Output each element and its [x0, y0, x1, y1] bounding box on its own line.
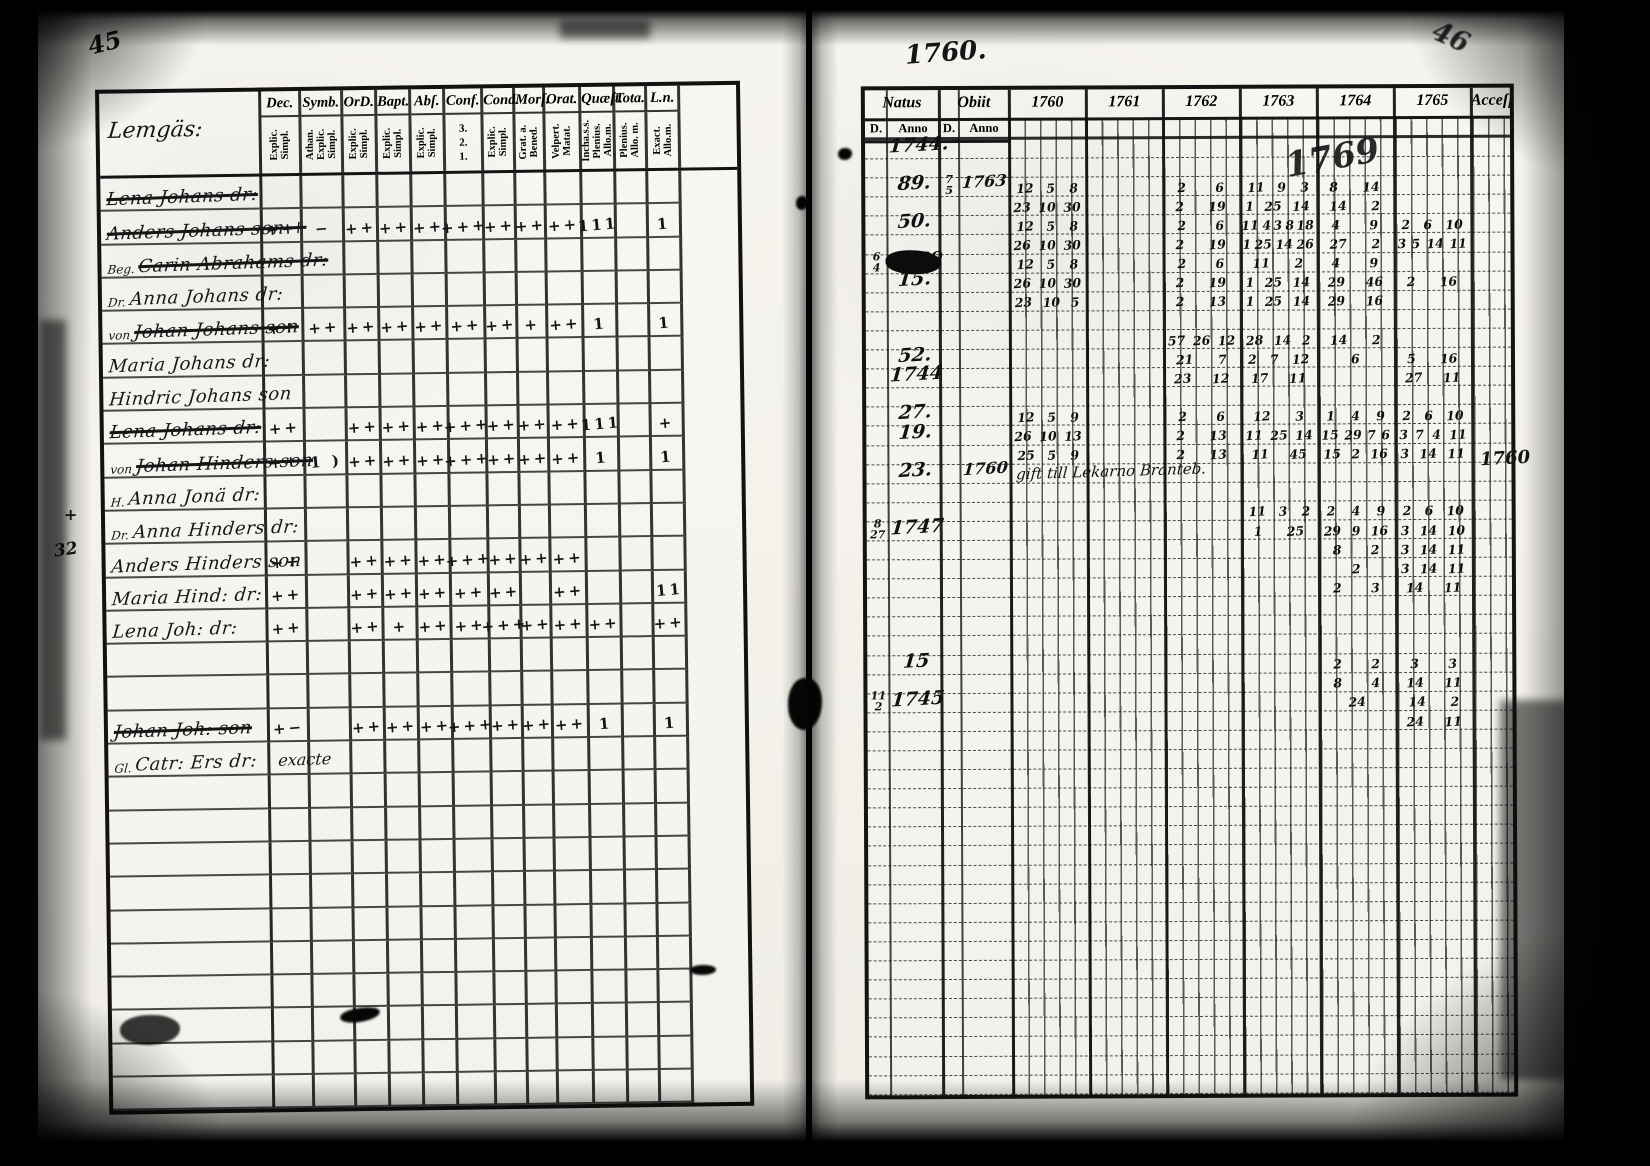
attendance-mark: ++	[547, 217, 579, 235]
year-cell: 142	[1318, 327, 1393, 346]
communion-date: 11	[1447, 447, 1465, 460]
mark-cell	[309, 641, 351, 675]
communion-date: 3	[1397, 238, 1406, 251]
attendance-mark: ++	[487, 451, 519, 469]
mark-cell	[309, 675, 351, 709]
year-cell: 261030	[1010, 271, 1085, 290]
person-name: Anna Jonä dr:	[128, 486, 261, 509]
mark-cell	[353, 774, 387, 808]
mark-cell	[488, 473, 520, 507]
communion-date: 2	[1371, 238, 1380, 251]
communion-date: 6	[1381, 429, 1390, 442]
mark-cell: ++	[487, 406, 519, 440]
communion-date: 25	[1270, 429, 1288, 442]
edge-smear	[560, 20, 650, 38]
mark-cell	[273, 975, 313, 1009]
communion-date: 2	[1294, 257, 1303, 270]
mark-cell	[388, 840, 422, 874]
mark-cell	[312, 908, 354, 942]
communion-date: 14	[1420, 524, 1438, 537]
mark-cell	[660, 1003, 693, 1037]
mark-cell	[519, 372, 549, 406]
column-subheader: 3. 2. 1.	[445, 114, 484, 171]
mark-cell	[487, 373, 519, 407]
mark-cell	[595, 1070, 629, 1104]
name-cell: vonJohan Hinders son	[104, 443, 266, 479]
communion-date: 1	[1254, 525, 1263, 538]
mark-cell	[527, 972, 557, 1006]
mark-cell	[381, 341, 415, 375]
communion-date: 9	[1277, 181, 1286, 194]
communion-date: 3	[1410, 658, 1419, 671]
attendance-mark: +++	[443, 417, 491, 436]
year-cell: 23	[1319, 575, 1394, 594]
name-cell: vonJohan Johans son	[102, 310, 264, 346]
mark-cell	[661, 1070, 694, 1104]
mark-cell	[307, 542, 349, 576]
year-cell: 152976	[1318, 423, 1393, 442]
column-subheader: Exact. Allo.m.	[647, 112, 681, 168]
communion-date: 14	[1329, 200, 1347, 213]
communion-date: 2	[1176, 296, 1185, 309]
mark-cell	[357, 1074, 391, 1108]
communion-date: 23	[1174, 372, 1192, 385]
mark-cell	[345, 241, 379, 275]
mark-cell	[624, 737, 656, 771]
natus-day-part: 2	[867, 701, 889, 712]
mark-cell	[556, 838, 592, 872]
attendance-mark: ++	[588, 616, 620, 634]
year-cell: 1132	[1242, 499, 1317, 518]
column-header: Quæſt.	[581, 87, 615, 113]
mark-cell: +++	[450, 440, 488, 474]
year-cell: 12514	[1240, 194, 1315, 213]
rotated-subheader-text: Explic. Simpl.	[348, 128, 370, 160]
year-cell: 49	[1317, 213, 1392, 232]
attendance-mark: ++	[350, 619, 382, 637]
communion-date: 9	[1352, 525, 1361, 538]
name-cell	[109, 809, 271, 845]
obiit-year: 1763	[958, 171, 1010, 193]
mark-cell	[355, 974, 389, 1008]
mark-cell	[592, 904, 626, 938]
attendance-mark: ++	[269, 454, 301, 472]
communion-date: 2	[1351, 448, 1360, 461]
name-cell	[112, 1042, 274, 1078]
communion-date: 2	[1301, 506, 1310, 519]
mark-cell	[495, 939, 527, 973]
mark-cell	[618, 304, 650, 338]
name-cell	[111, 976, 273, 1012]
mark-cell	[624, 704, 656, 738]
mark-cell	[659, 936, 692, 970]
attendance-mark: ++	[551, 450, 583, 468]
mark-cell	[308, 575, 350, 609]
name-prefix: H.	[110, 495, 126, 510]
attendance-mark: ++	[347, 419, 379, 437]
mark-cell	[555, 805, 591, 839]
year-cell: 216	[1395, 269, 1470, 288]
communion-date: 14	[1293, 295, 1311, 308]
natus-year: 19.	[889, 419, 941, 444]
attendance-mark: ++	[270, 587, 302, 605]
attendance-mark: ++	[550, 416, 582, 434]
mark-cell	[420, 740, 454, 774]
communion-date: 14	[1420, 543, 1438, 556]
communion-date: 1	[1245, 200, 1254, 213]
year-cell: 2712	[1241, 347, 1316, 366]
mark-cell	[273, 942, 313, 976]
year-cell: 1258	[1009, 176, 1084, 195]
communion-date: 6	[1424, 410, 1433, 423]
year-cell: 142	[1396, 690, 1471, 709]
name-cell: Johan Joh: son	[108, 709, 270, 745]
communion-date: 12	[1016, 220, 1034, 233]
communion-date: 7	[1415, 429, 1424, 442]
mark-cell	[587, 504, 621, 538]
name-cell	[109, 776, 271, 812]
natus-year: 50.	[888, 209, 940, 234]
communion-date: 19	[1209, 277, 1227, 290]
year-cell: 22	[1319, 652, 1394, 671]
mark-cell	[496, 1005, 528, 1039]
mark-cell: 1	[652, 437, 685, 471]
year-cell: 217	[1164, 347, 1239, 366]
attendance-mark: ++	[450, 318, 482, 336]
communion-date: 14	[1274, 334, 1292, 347]
communion-date: 2	[1326, 506, 1335, 519]
communion-date: 5	[1047, 220, 1056, 233]
column-subheader: Velpert. Matat.	[545, 113, 582, 169]
mark-cell: ++	[588, 604, 622, 638]
communion-date: 14	[1275, 238, 1293, 251]
attendance-mark: ++	[418, 618, 450, 636]
attendance-mark: +−	[272, 720, 304, 738]
mark-cell: +	[651, 404, 684, 438]
mark-cell: 1 )	[306, 442, 348, 476]
communion-date: 9	[1376, 505, 1385, 518]
column-header: Bapt.	[377, 89, 411, 115]
rotated-subheader-text: Explic. Simpl.	[269, 129, 291, 161]
mark-cell	[271, 775, 311, 809]
communion-date: 4	[1432, 429, 1441, 442]
natus-year: 15	[890, 648, 942, 673]
year-cell: 219	[1163, 194, 1238, 213]
mark-cell	[518, 272, 548, 306]
year-cell: 15216	[1318, 442, 1393, 461]
attendance-mark: ++	[554, 716, 586, 734]
communion-date: 29	[1327, 295, 1345, 308]
ink-blob	[796, 196, 808, 210]
mark-cell	[619, 371, 651, 405]
communion-date: 11	[1449, 237, 1467, 250]
communion-date: 5	[1047, 411, 1056, 424]
communion-date: 6	[1215, 258, 1224, 271]
communion-date: 2	[1302, 334, 1311, 347]
communion-date: 25	[1254, 238, 1272, 251]
mark-cell: ++	[490, 572, 522, 606]
column-header: Tota.	[615, 86, 647, 112]
communion-date: 12	[1016, 258, 1034, 271]
attendance-mark: +++	[441, 217, 489, 236]
year-cell: 26	[1163, 175, 1238, 194]
communion-date: 11	[1442, 371, 1460, 384]
mark-cell	[347, 341, 381, 375]
year-cell: 84	[1319, 671, 1394, 690]
year-cell: 26	[1164, 404, 1239, 423]
name-cell: Maria Hind: dr:	[106, 576, 268, 612]
attendance-mark: ++	[383, 552, 415, 570]
mark-cell	[421, 806, 455, 840]
margin-mark-plus: +	[64, 505, 77, 524]
year-cell: 33	[1396, 651, 1471, 670]
year-cell: 6	[1318, 346, 1393, 365]
column-header: Morſ.	[515, 88, 545, 114]
communion-date: 11	[1448, 543, 1466, 556]
communion-date: 25	[1287, 525, 1305, 538]
communion-date: 2	[1247, 353, 1256, 366]
mark-cell	[415, 374, 449, 408]
mark-cell	[591, 771, 625, 805]
mark-cell	[525, 805, 555, 839]
name-cell: Hindric Johans son	[103, 376, 265, 412]
mark-cell: +	[518, 306, 548, 340]
mark-cell	[351, 641, 385, 675]
mark-cell	[351, 674, 385, 708]
mark-cell	[556, 871, 592, 905]
mark-cell	[266, 476, 306, 510]
mark-cell	[378, 174, 412, 208]
name-prefix: Dr.	[111, 528, 130, 543]
mark-cell	[618, 271, 650, 305]
mark-cell	[621, 504, 653, 538]
year-cell: 213	[1164, 290, 1239, 309]
mark-cell	[312, 874, 354, 908]
mark-cell	[523, 672, 553, 706]
natus-day-part: 27	[867, 529, 889, 540]
mark-cell: ++	[345, 208, 379, 242]
attendance-mark: ++	[268, 420, 300, 438]
mark-cell	[655, 637, 688, 671]
mark-cell	[623, 637, 655, 671]
attendance-mark: 111	[578, 216, 619, 234]
mark-cell	[272, 875, 312, 909]
attendance-mark: ++	[414, 318, 446, 336]
mark-cell	[271, 808, 311, 842]
communion-date: 2	[1175, 201, 1184, 214]
mark-cell: ++	[489, 539, 521, 573]
attendance-mark: ++	[553, 616, 585, 634]
mark-cell	[620, 471, 652, 505]
mark-cell	[493, 772, 525, 806]
attendance-mark: ++	[490, 717, 522, 735]
year-cell: 31411	[1396, 556, 1471, 575]
communion-date: 5	[1047, 258, 1056, 271]
year-cell: 112514	[1241, 423, 1316, 442]
year-cell: 49	[1318, 251, 1393, 270]
mark-cell	[484, 173, 516, 207]
mark-cell	[622, 604, 654, 638]
attendance-mark: ++	[552, 550, 584, 568]
communion-date: 18	[1296, 219, 1314, 232]
mark-cell: ++	[348, 441, 382, 475]
mark-cell	[593, 971, 627, 1005]
year-cell: 24	[1319, 690, 1394, 709]
person-name: Anna Johans dr:	[129, 286, 284, 309]
mark-cell	[623, 670, 655, 704]
name-prefix: Gl.	[114, 762, 133, 777]
year-cell: 2916	[1318, 289, 1393, 308]
mark-cell	[417, 507, 451, 541]
communion-date: 4	[1351, 505, 1360, 518]
mark-cell	[455, 773, 493, 807]
year-cell: 82	[1319, 537, 1394, 556]
year-cell: 2559	[1010, 443, 1085, 462]
rotated-subheader-text: Plenius. Allo. m.	[619, 123, 642, 159]
natus-day-part: 4	[866, 262, 888, 273]
column-subheader: Grat. a. Bened.	[515, 114, 546, 170]
person-name: Maria Johans dr:	[108, 352, 271, 376]
mark-cell	[629, 1070, 661, 1104]
communion-date: 1	[1326, 410, 1335, 423]
mark-cell	[585, 371, 619, 405]
communion-date: 14	[1295, 429, 1313, 442]
column-header: Cond.	[483, 88, 515, 114]
left-table: Dec.Symb.OrD.Bapt.Abſ.Conf.Cond.Morſ.Ora…	[95, 81, 754, 1115]
attendance-mark: ++	[417, 585, 449, 603]
year-cell: 261013	[1010, 424, 1085, 443]
year-cell: 1258	[1009, 214, 1084, 233]
natus-year: 1744.	[888, 133, 940, 158]
attendance-mark: +++	[444, 450, 492, 469]
obiit-year: 1760	[960, 457, 1012, 479]
edge-smear	[1500, 700, 1570, 1080]
rotated-subheader-text: 3. 2. 1.	[459, 121, 468, 164]
attendance-mark: +++	[448, 717, 496, 736]
communion-date: 11	[1449, 428, 1467, 441]
mark-cell	[627, 937, 659, 971]
mark-cell	[557, 971, 593, 1005]
attendance-mark: ++	[519, 550, 551, 568]
communion-date: 26	[1192, 334, 1210, 347]
mark-cell: ++	[552, 572, 588, 606]
mark-cell	[492, 739, 524, 773]
communion-date: 15	[1323, 448, 1341, 461]
name-cell	[107, 676, 269, 712]
communion-date: 11	[1443, 581, 1461, 594]
mark-cell	[491, 672, 523, 706]
communion-date: 12	[1253, 410, 1271, 423]
rotated-subheader-text: Explic. Simpl.	[382, 128, 404, 160]
mark-cell	[559, 1071, 595, 1105]
name-cell: Anders Johans son +	[101, 210, 263, 246]
communion-date: 11	[1251, 448, 1269, 461]
column-header: OrD.	[343, 90, 377, 116]
mark-cell	[305, 342, 347, 376]
mark-cell: ++	[350, 608, 384, 642]
mark-cell: ++	[548, 305, 584, 339]
communion-date: 10	[1038, 277, 1056, 290]
mark-cell: ++	[386, 707, 420, 741]
mark-cell: ++	[346, 308, 380, 342]
mark-cell	[382, 474, 416, 508]
communion-date: 11	[1241, 219, 1259, 232]
year-cell: 1251426	[1240, 232, 1315, 251]
mark-cell	[653, 537, 686, 571]
mark-cell	[589, 671, 623, 705]
column-subheader: Plenius. Allo. m.	[615, 112, 648, 168]
rotated-subheader-text: Incha.s.s. Plenius. Allo.m.	[581, 120, 614, 162]
mark-cell	[422, 873, 456, 907]
attendance-mark: ++	[521, 716, 553, 734]
mark-cell	[551, 505, 587, 539]
mark-cell	[381, 374, 415, 408]
communion-date: 30	[1063, 277, 1081, 290]
mark-cell	[557, 938, 593, 972]
communion-date: 2	[1178, 258, 1187, 271]
communion-date: 3	[1399, 429, 1408, 442]
mark-cell	[593, 937, 627, 971]
mark-cell	[495, 972, 527, 1006]
attendance-mark: ++	[520, 617, 552, 635]
mark-cell	[657, 770, 690, 804]
mark-cell	[619, 338, 651, 372]
mark-cell	[451, 506, 489, 540]
communion-date: 1	[1242, 239, 1251, 252]
mark-cell	[657, 836, 690, 870]
mark-cell	[424, 1040, 458, 1074]
mark-cell: ++	[452, 573, 490, 607]
mark-cell	[621, 537, 653, 571]
name-cell: Lena Johans dr:	[100, 176, 262, 212]
column-subheader: Explic. Simpl.	[411, 115, 446, 171]
rotated-subheader-text: Exact. Allo.m.	[652, 123, 674, 156]
communion-date: 57	[1167, 334, 1185, 347]
attendance-mark: ++	[267, 320, 299, 338]
mark-cell	[450, 473, 488, 507]
mark-cell	[449, 373, 487, 407]
communion-date: 4	[1351, 410, 1360, 423]
mark-cell: ++	[524, 705, 554, 739]
row-note: exacte	[278, 749, 333, 770]
mark-cell	[457, 972, 495, 1006]
communion-date: 4	[1371, 677, 1380, 690]
mark-cell: ++	[383, 541, 417, 575]
year-cell: 2610	[1395, 403, 1470, 422]
mark-cell	[548, 272, 584, 306]
attendance-mark: ++	[453, 584, 485, 602]
year-cell: 213	[1164, 423, 1239, 442]
name-cell	[110, 842, 272, 878]
mark-cell	[416, 474, 450, 508]
mark-cell	[385, 674, 419, 708]
communion-date: 10	[1043, 296, 1061, 309]
rotated-subheader-text: Velpert. Matat.	[551, 123, 574, 159]
attendance-mark: ++	[265, 221, 297, 239]
mark-cell	[522, 572, 552, 606]
mark-cell	[584, 271, 618, 305]
mark-cell	[556, 904, 592, 938]
mark-cell	[485, 240, 517, 274]
year-cell: 1143818	[1240, 213, 1315, 232]
mark-cell	[549, 372, 585, 406]
attendance-mark: 1	[658, 316, 673, 332]
mark-cell: 111	[583, 205, 617, 239]
communion-date: 13	[1209, 448, 1227, 461]
mark-cell	[390, 1040, 424, 1074]
edge-smear	[40, 320, 66, 740]
mark-cell: 1	[649, 204, 682, 238]
